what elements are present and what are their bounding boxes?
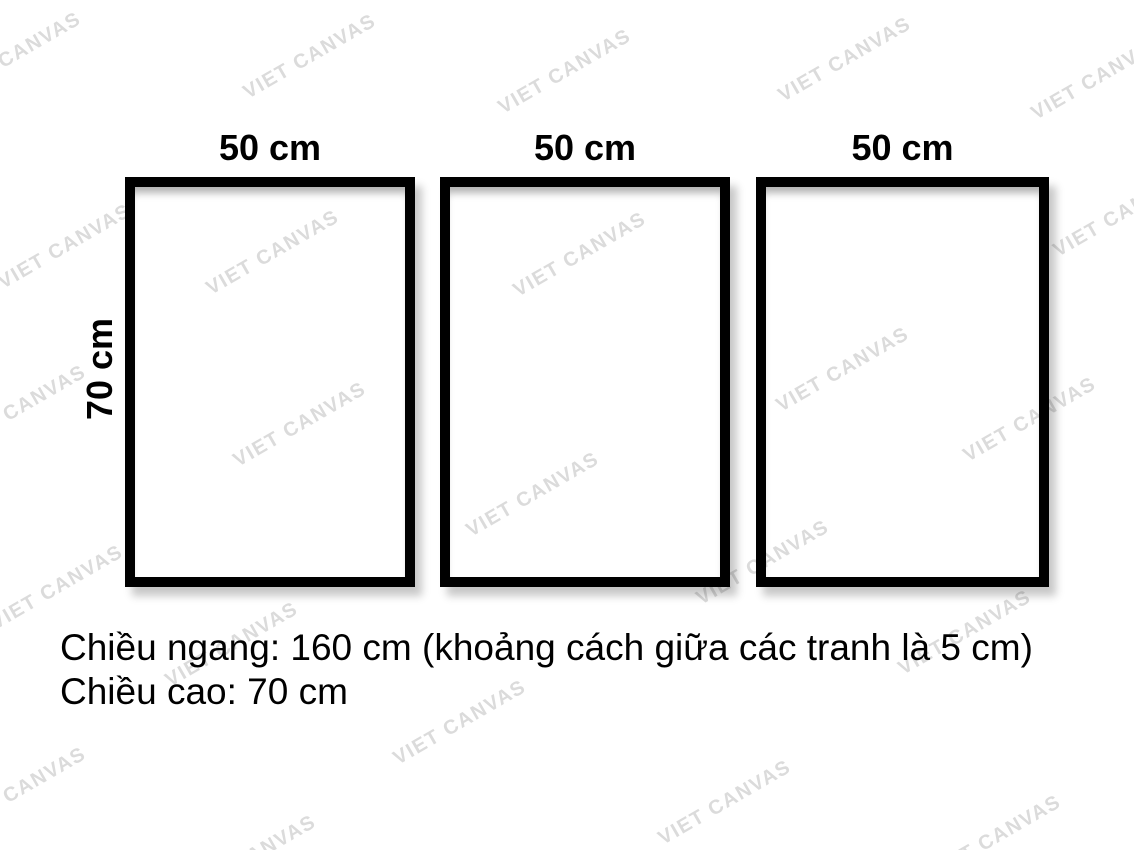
frame-1-width-label: 50 cm [125,126,415,170]
viet-canvas-watermark: VIET CANVAS [655,756,796,850]
viet-canvas-watermark: VIET CANVAS [180,811,321,850]
viet-canvas-watermark: VIET CANVAS [0,361,90,456]
picture-frame-3 [756,177,1049,587]
viet-canvas-watermark: VIET CANVAS [0,743,90,838]
description-line-height: Chiều cao: 70 cm [60,670,1033,714]
viet-canvas-watermark: VIET CANVAS [0,8,85,103]
dimension-description: Chiều ngang: 160 cm (khoảng cách giữa cá… [60,626,1033,714]
viet-canvas-watermark: VIET CANVAS [0,541,127,636]
viet-canvas-watermark: VIET CANVAS [1050,168,1134,263]
picture-frame-2 [440,177,730,587]
viet-canvas-watermark: VIET CANVAS [0,200,135,295]
frame-2-width-label: 50 cm [440,126,730,170]
viet-canvas-watermark: VIET CANVAS [775,13,916,108]
description-line-width: Chiều ngang: 160 cm (khoảng cách giữa cá… [60,626,1033,670]
dimension-diagram: VIET CANVASVIET CANVASVIET CANVASVIET CA… [0,0,1134,850]
viet-canvas-watermark: VIET CANVAS [240,10,381,105]
viet-canvas-watermark: VIET CANVAS [495,25,636,120]
viet-canvas-watermark: VIET CANVAS [925,791,1066,850]
picture-frame-1 [125,177,415,587]
frame-3-width-label: 50 cm [756,126,1049,170]
viet-canvas-watermark: VIET CANVAS [1028,31,1134,126]
frame-height-label: 70 cm [79,318,121,420]
